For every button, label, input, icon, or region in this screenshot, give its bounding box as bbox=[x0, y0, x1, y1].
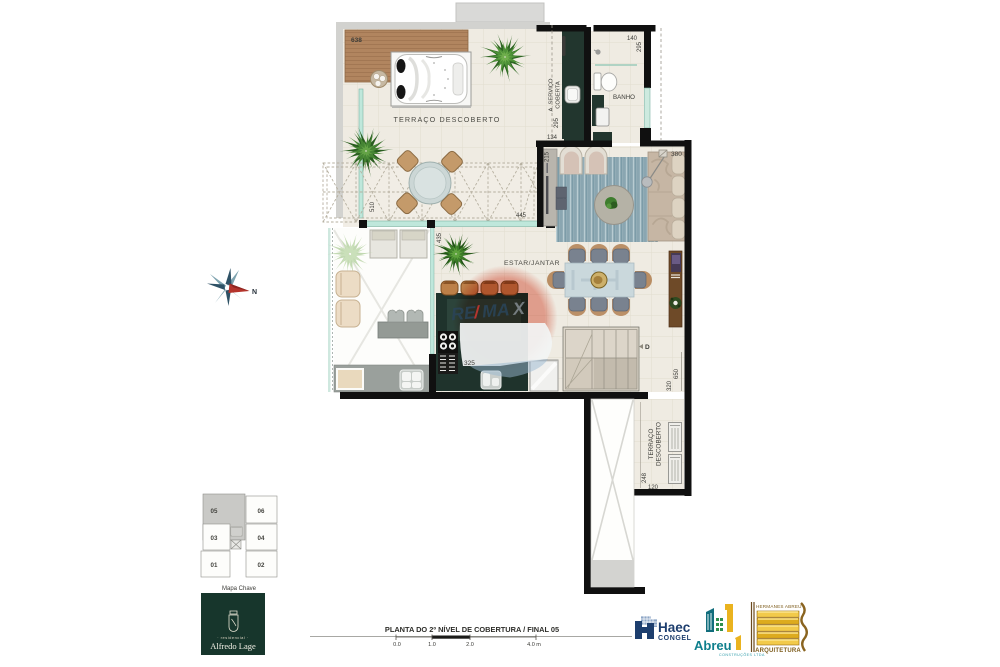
svg-text:ESTAR/JANTAR: ESTAR/JANTAR bbox=[504, 260, 560, 267]
svg-text:320: 320 bbox=[667, 380, 673, 391]
svg-text:Mapa Chave: Mapa Chave bbox=[222, 586, 257, 592]
svg-text:Alfredo Lage: Alfredo Lage bbox=[210, 641, 256, 651]
svg-text:Abreu: Abreu bbox=[694, 638, 732, 653]
svg-text:510: 510 bbox=[370, 201, 376, 212]
svg-text:N: N bbox=[252, 289, 257, 296]
svg-text:02: 02 bbox=[258, 562, 265, 569]
svg-text:638: 638 bbox=[351, 37, 362, 44]
svg-text:140: 140 bbox=[627, 36, 638, 42]
svg-text:435: 435 bbox=[437, 232, 443, 243]
svg-text:325: 325 bbox=[464, 360, 475, 367]
svg-text:COBERTA: COBERTA bbox=[556, 81, 562, 109]
svg-text:380: 380 bbox=[671, 151, 682, 158]
svg-text:0.0: 0.0 bbox=[393, 642, 401, 648]
svg-text:01: 01 bbox=[211, 562, 218, 569]
svg-text:A. SERVIÇO: A. SERVIÇO bbox=[549, 78, 555, 112]
svg-text:HERMANES ABREU: HERMANES ABREU bbox=[756, 604, 802, 609]
svg-text:248: 248 bbox=[642, 472, 648, 483]
svg-text:CONGEL: CONGEL bbox=[658, 635, 692, 642]
svg-text:650: 650 bbox=[674, 368, 680, 379]
svg-text:06: 06 bbox=[258, 508, 265, 515]
svg-text:295: 295 bbox=[554, 117, 560, 128]
svg-text:1.0: 1.0 bbox=[428, 642, 436, 648]
svg-text:04: 04 bbox=[258, 535, 265, 542]
svg-text:215: 215 bbox=[545, 151, 551, 162]
svg-text:MA: MA bbox=[481, 299, 510, 321]
svg-text:03: 03 bbox=[211, 535, 218, 542]
svg-text:2.0: 2.0 bbox=[466, 642, 474, 648]
svg-text:D: D bbox=[645, 344, 650, 351]
svg-text:TERRAÇO DESCOBERTO: TERRAÇO DESCOBERTO bbox=[394, 115, 501, 124]
svg-text:05: 05 bbox=[211, 508, 218, 515]
svg-text:· residencial ·: · residencial · bbox=[217, 635, 249, 640]
svg-text:4.0 m: 4.0 m bbox=[527, 642, 541, 648]
svg-text:DESCOBERTO: DESCOBERTO bbox=[656, 422, 663, 466]
svg-text:TERRAÇO: TERRAÇO bbox=[648, 429, 655, 460]
svg-text:Haec: Haec bbox=[658, 620, 691, 635]
svg-text:PLANTA DO 2º NÍVEL DE COBERTUR: PLANTA DO 2º NÍVEL DE COBERTURA / FINAL … bbox=[385, 625, 559, 634]
svg-text:295: 295 bbox=[637, 41, 643, 52]
svg-text:445: 445 bbox=[516, 213, 527, 219]
svg-text:BANHO: BANHO bbox=[613, 94, 635, 101]
svg-text:120: 120 bbox=[648, 485, 659, 491]
svg-text:ARQUITETURA: ARQUITETURA bbox=[755, 648, 801, 654]
